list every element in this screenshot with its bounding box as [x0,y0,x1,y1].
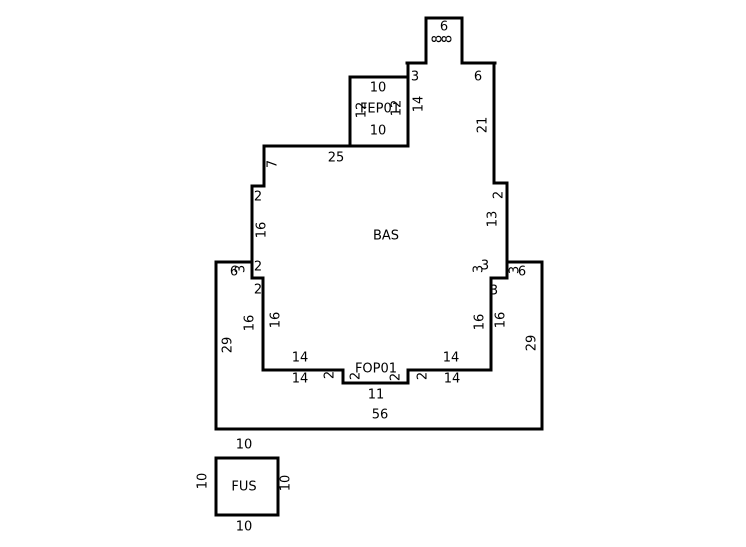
dimension-label: 56 [372,408,389,423]
dimension-label: 3 [481,259,489,274]
dimension-label: 12 [390,100,405,117]
wall-left-wall [252,146,264,370]
dimension-label: 29 [221,337,236,354]
dimension-label: 14 [292,351,309,366]
dimension-label: 29 [525,335,540,352]
dimension-label: 2 [254,283,262,298]
dimension-label: 6 [518,265,526,280]
dimension-label: 21 [476,117,491,134]
dimension-label: 8 [441,35,456,43]
dimension-label: 2 [254,260,262,275]
dimension-label: 16 [243,315,258,332]
dimension-label: 2 [323,371,338,379]
dimension-label: 2 [416,372,431,380]
dimension-label: 6 [440,20,448,35]
dimension-label: 13 [486,211,501,228]
dimension-label: 2 [389,373,404,381]
dimension-label: 3 [234,265,249,273]
dimension-label: 14 [444,372,461,387]
dimension-label: 10 [196,473,211,490]
dimension-label: 14 [443,351,460,366]
dimension-label: 6 [474,70,482,85]
dimension-label: 16 [473,314,488,331]
dimension-label: 2 [492,191,507,199]
dimension-label: 3 [490,284,498,299]
dimension-label: 11 [368,388,385,403]
dimension-label: 16 [494,312,509,329]
dimension-label: 16 [269,312,284,329]
dimension-label: 2 [349,372,364,380]
dimension-label: 3 [411,70,419,85]
dimension-label: 10 [236,438,253,453]
floorplan-sketch-canvas: 688361012FEP0112101421257221316BAS263333… [0,0,746,547]
dimension-label: 25 [328,151,345,166]
dimension-label: 10 [370,124,387,139]
dimension-label: 10 [236,520,253,535]
area-label-fus: FUS [231,480,256,495]
area-label-bas: BAS [373,229,399,244]
dimension-label: 7 [266,160,281,168]
dimension-label: 2 [254,190,262,205]
dimension-label: 10 [370,81,387,96]
dimension-label: 16 [255,222,270,239]
dimension-label: 10 [279,475,294,492]
dimension-label: 14 [292,372,309,387]
floorplan-outline-svg: 688361012FEP0112101421257221316BAS263333… [0,0,746,547]
dimension-label: 14 [412,96,427,113]
